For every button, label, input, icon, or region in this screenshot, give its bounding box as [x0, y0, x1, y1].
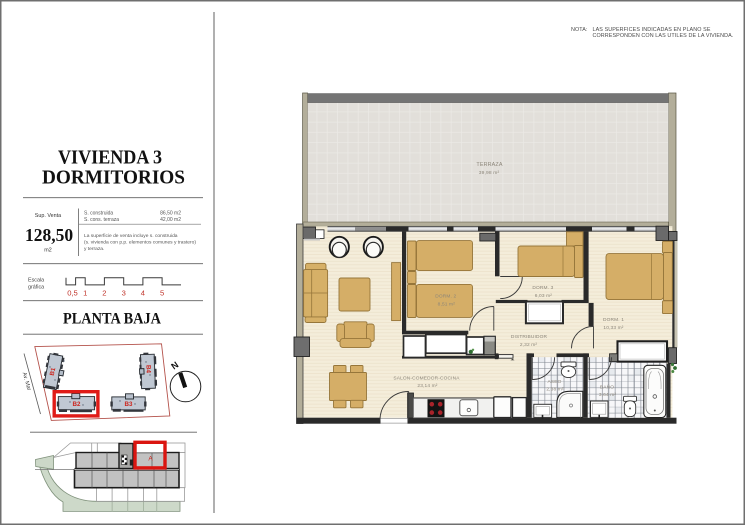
svg-text:S. construida: S. construida: [84, 211, 113, 217]
svg-text:B2: B2: [73, 401, 81, 408]
svg-text:Escala: Escala: [28, 278, 44, 284]
svg-text:LAS SUPERFICES INDICADAS EN PL: LAS SUPERFICES INDICADAS EN PLANO SE: [593, 27, 711, 33]
svg-text:10,33 m²: 10,33 m²: [603, 325, 623, 331]
svg-text:86,50 m2: 86,50 m2: [160, 211, 181, 217]
svg-text:BAÑO: BAÑO: [600, 384, 614, 391]
svg-text:128,50: 128,50: [25, 225, 73, 245]
svg-text:0,5: 0,5: [67, 288, 78, 297]
svg-text:SALON-COMEDOR-COCINA: SALON-COMEDOR-COCINA: [393, 375, 460, 381]
svg-text:DISTRIBUIDOR: DISTRIBUIDOR: [511, 334, 548, 340]
svg-text:ASEO: ASEO: [548, 379, 562, 385]
svg-text:S. cons. terraza: S. cons. terraza: [84, 217, 119, 223]
svg-text:Sup. Venta: Sup. Venta: [35, 213, 61, 219]
svg-text:2,38 m²: 2,38 m²: [546, 387, 564, 393]
svg-text:B4: B4: [145, 365, 152, 373]
svg-text:B3: B3: [125, 401, 133, 408]
svg-text:VIVIENDA 3: VIVIENDA 3: [58, 147, 162, 169]
svg-text:2,32 m²: 2,32 m²: [520, 342, 538, 348]
svg-text:3,64 m²: 3,64 m²: [599, 392, 617, 398]
svg-text:CORRESPONDEN CON LAS UTILES DE: CORRESPONDEN CON LAS UTILES DE LA VIVIEN…: [593, 33, 734, 39]
svg-text:TERRAZA: TERRAZA: [476, 162, 502, 168]
svg-text:m2: m2: [44, 248, 52, 254]
svg-text:39,98 m²: 39,98 m²: [479, 170, 500, 176]
svg-text:5: 5: [160, 288, 164, 297]
svg-text:A: A: [148, 456, 153, 463]
svg-text:42,00 m2: 42,00 m2: [160, 217, 181, 223]
svg-text:8,51 m²: 8,51 m²: [438, 302, 456, 308]
svg-text:DORMITORIOS: DORMITORIOS: [42, 167, 185, 189]
svg-text:6,03 m²: 6,03 m²: [535, 293, 553, 299]
svg-text:gráfica: gráfica: [28, 285, 44, 291]
svg-text:1: 1: [83, 288, 87, 297]
svg-text:La superficie de venta incluye: La superficie de venta incluye s. constr…: [84, 233, 178, 239]
svg-text:3: 3: [122, 288, 126, 297]
svg-text:y terraza.: y terraza.: [84, 246, 104, 252]
svg-text:PLANTA BAJA: PLANTA BAJA: [63, 311, 161, 328]
svg-text:4: 4: [141, 288, 145, 297]
svg-text:DORM. 1: DORM. 1: [603, 317, 624, 323]
svg-text:23,14 m²: 23,14 m²: [417, 383, 437, 389]
svg-text:(s. vivienda con p.p. elemento: (s. vivienda con p.p. elementos comunes …: [84, 239, 196, 245]
svg-text:NOTA:: NOTA:: [571, 27, 588, 33]
svg-text:DORM. 2: DORM. 2: [435, 294, 456, 300]
svg-text:2: 2: [102, 288, 106, 297]
svg-text:DORM. 3: DORM. 3: [532, 285, 553, 291]
